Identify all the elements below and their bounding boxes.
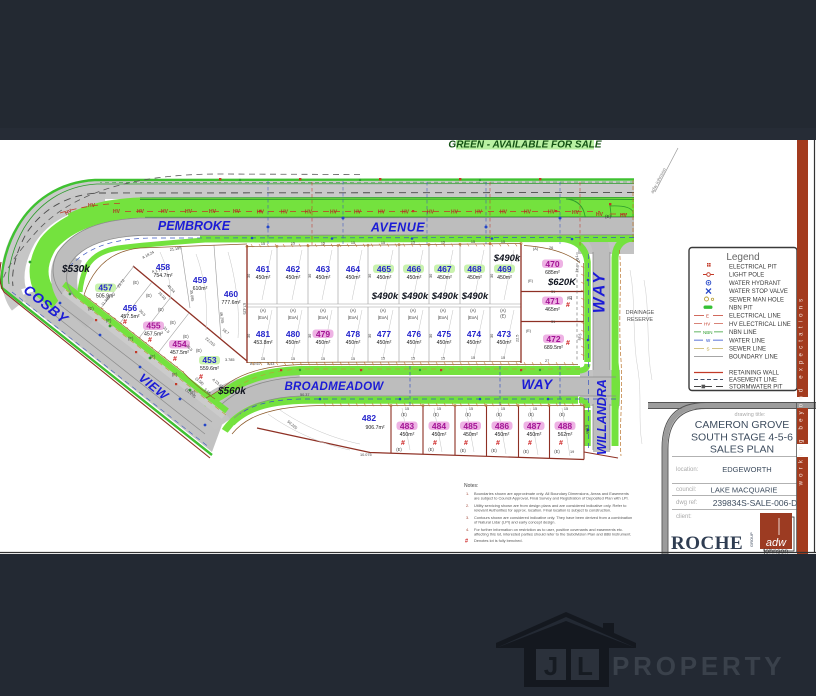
svg-text:468: 468 xyxy=(467,264,481,274)
svg-text:(E): (E) xyxy=(460,448,466,453)
svg-text:450m²: 450m² xyxy=(432,432,447,438)
svg-text:#: # xyxy=(465,539,468,545)
svg-text:relevant Authorities for appro: relevant Authorities for approx. locatio… xyxy=(474,508,611,513)
svg-text:ELECTRICAL PIT: ELECTRICAL PIT xyxy=(729,265,777,271)
svg-text:HV: HV xyxy=(233,209,241,215)
svg-text:(ExA): (ExA) xyxy=(318,315,329,320)
svg-text:HV: HV xyxy=(500,210,508,216)
svg-text:#: # xyxy=(433,440,437,447)
svg-text:(A): (A) xyxy=(500,308,506,313)
svg-text:HV: HV xyxy=(524,210,532,216)
svg-text:(E): (E) xyxy=(196,348,202,353)
svg-text:22.5: 22.5 xyxy=(516,255,520,262)
svg-text:15: 15 xyxy=(381,357,385,361)
svg-text:RETAINING WALL: RETAINING WALL xyxy=(729,371,780,377)
svg-text:777.6m²: 777.6m² xyxy=(221,300,240,306)
svg-text:affecting this lot, interested: affecting this lot, interested parties s… xyxy=(474,532,631,537)
svg-text:465: 465 xyxy=(377,264,391,274)
svg-text:30: 30 xyxy=(490,334,494,338)
svg-text:SALES PLAN: SALES PLAN xyxy=(710,444,774,456)
svg-text:484: 484 xyxy=(432,421,446,431)
svg-text:467: 467 xyxy=(437,264,451,274)
svg-text:HV: HV xyxy=(620,213,628,219)
svg-text:dwg ref:: dwg ref: xyxy=(676,500,698,506)
svg-text:BROADMEADOW: BROADMEADOW xyxy=(284,381,384,393)
svg-text:HV: HV xyxy=(137,209,145,215)
svg-text:57.425: 57.425 xyxy=(242,303,246,315)
svg-text:(F): (F) xyxy=(150,354,156,359)
svg-text:455: 455 xyxy=(146,321,160,331)
svg-text:450m²: 450m² xyxy=(463,432,478,438)
svg-text:$490k: $490k xyxy=(431,291,459,302)
svg-text:450m²: 450m² xyxy=(316,275,331,281)
svg-text:450m²: 450m² xyxy=(495,432,510,438)
svg-text:(A): (A) xyxy=(260,308,266,313)
svg-text:450m²: 450m² xyxy=(437,275,452,281)
svg-text:(E): (E) xyxy=(526,329,532,333)
svg-text:(E): (E) xyxy=(396,447,402,452)
svg-text:450m²: 450m² xyxy=(407,340,422,346)
svg-text:486: 486 xyxy=(495,421,509,431)
svg-text:WATER LINE: WATER LINE xyxy=(729,338,765,344)
svg-text:475: 475 xyxy=(437,329,451,339)
svg-text:(A): (A) xyxy=(320,308,326,313)
svg-text:450m²: 450m² xyxy=(467,340,482,346)
svg-text:450m²: 450m² xyxy=(316,340,331,346)
svg-text:3.785: 3.785 xyxy=(225,358,235,362)
svg-text:HV: HV xyxy=(402,210,410,216)
svg-text:15: 15 xyxy=(564,407,568,411)
svg-text:HV: HV xyxy=(451,210,459,216)
svg-text:HV: HV xyxy=(209,209,217,215)
svg-text:(E): (E) xyxy=(133,280,139,285)
svg-text:450m²: 450m² xyxy=(407,275,422,281)
svg-text:L: L xyxy=(577,651,593,681)
svg-text:453.8m²: 453.8m² xyxy=(253,340,272,346)
svg-text:#: # xyxy=(123,319,127,326)
svg-text:(E): (E) xyxy=(496,412,502,417)
svg-text:15: 15 xyxy=(351,241,355,245)
svg-text:488: 488 xyxy=(558,421,572,431)
svg-text:location:: location: xyxy=(676,467,699,473)
svg-text:15: 15 xyxy=(261,357,265,361)
svg-text:(E): (E) xyxy=(523,449,529,454)
svg-text:15: 15 xyxy=(321,357,325,361)
svg-text:NBN PIT: NBN PIT xyxy=(729,306,753,312)
svg-text:Legend: Legend xyxy=(726,252,759,263)
svg-text:15: 15 xyxy=(471,356,475,360)
svg-text:15: 15 xyxy=(291,357,295,361)
svg-text:15: 15 xyxy=(471,240,475,244)
svg-text:450m²: 450m² xyxy=(497,275,512,281)
svg-text:450m²: 450m² xyxy=(467,275,482,281)
svg-text:S: S xyxy=(707,346,710,351)
svg-text:(A): (A) xyxy=(290,308,296,313)
svg-text:450m²: 450m² xyxy=(346,340,361,346)
svg-text:15: 15 xyxy=(437,407,441,411)
svg-text:10.075: 10.075 xyxy=(360,453,372,457)
svg-text:478: 478 xyxy=(346,329,360,339)
svg-text:HV: HV xyxy=(257,210,265,216)
svg-text:15: 15 xyxy=(351,357,355,361)
svg-text:456: 456 xyxy=(123,303,137,313)
svg-text:459: 459 xyxy=(193,275,207,285)
svg-text:483: 483 xyxy=(400,421,414,431)
svg-text:(E): (E) xyxy=(433,412,439,417)
svg-text:(E): (E) xyxy=(500,314,506,319)
svg-text:NBN LINE: NBN LINE xyxy=(729,330,757,336)
svg-text:471: 471 xyxy=(545,296,559,306)
svg-text:(F): (F) xyxy=(190,390,196,395)
svg-text:drawing title:: drawing title: xyxy=(735,412,766,418)
svg-text:(E): (E) xyxy=(401,412,407,417)
svg-text:450m²: 450m² xyxy=(497,340,512,346)
svg-text:27: 27 xyxy=(545,359,549,363)
svg-text:(E): (E) xyxy=(88,306,94,311)
svg-text:(E): (E) xyxy=(465,412,471,417)
svg-text:of Natural Lidar (LPI) and ear: of Natural Lidar (LPI) and early concept… xyxy=(474,520,556,525)
svg-text:5.43: 5.43 xyxy=(267,362,274,366)
svg-text:(ExA): (ExA) xyxy=(408,315,419,320)
svg-text:#: # xyxy=(401,440,405,447)
svg-text:EDGEWORTH: EDGEWORTH xyxy=(722,465,771,474)
svg-text:(ExA): (ExA) xyxy=(378,315,389,320)
svg-text:SEWER MAN HOLE: SEWER MAN HOLE xyxy=(729,297,784,303)
svg-text:450m²: 450m² xyxy=(286,275,301,281)
svg-text:are subject to Council Approva: are subject to Council Approval, Final S… xyxy=(474,496,629,501)
svg-text:470: 470 xyxy=(545,259,559,269)
svg-text:15: 15 xyxy=(501,407,505,411)
svg-text:HV: HV xyxy=(88,203,96,209)
svg-text:473: 473 xyxy=(497,329,511,339)
svg-text:476: 476 xyxy=(407,329,421,339)
svg-text:19: 19 xyxy=(570,450,574,454)
svg-text:485: 485 xyxy=(463,421,477,431)
svg-text:480: 480 xyxy=(286,329,300,339)
svg-text:#: # xyxy=(464,440,468,447)
svg-text:RESERVE: RESERVE xyxy=(627,317,654,323)
svg-text:15: 15 xyxy=(469,407,473,411)
svg-text:#: # xyxy=(566,340,570,347)
svg-text:WILLANDRA: WILLANDRA xyxy=(595,379,609,455)
svg-text:HV: HV xyxy=(354,210,362,216)
svg-text:HV: HV xyxy=(427,210,435,216)
svg-text:Denotes lot is fully benched.: Denotes lot is fully benched. xyxy=(474,538,523,543)
svg-text:30: 30 xyxy=(308,274,312,278)
svg-text:(E): (E) xyxy=(170,320,176,325)
svg-text:487: 487 xyxy=(527,421,541,431)
svg-text:15: 15 xyxy=(501,240,505,244)
svg-text:(E): (E) xyxy=(559,412,565,417)
svg-text:15: 15 xyxy=(441,241,445,245)
svg-text:559.6m²: 559.6m² xyxy=(200,366,219,372)
svg-text:450m²: 450m² xyxy=(346,275,361,281)
svg-text:GREEN - AVAILABLE FOR SALE: GREEN - AVAILABLE FOR SALE xyxy=(448,140,601,151)
svg-text:450m²: 450m² xyxy=(256,275,271,281)
svg-text:(E): (E) xyxy=(605,214,612,219)
svg-text:31: 31 xyxy=(551,290,555,294)
svg-text:(A): (A) xyxy=(533,247,539,251)
svg-text:(E): (E) xyxy=(528,412,534,417)
svg-text:CAMERON GROVE: CAMERON GROVE xyxy=(695,419,790,431)
svg-text:HV: HV xyxy=(161,209,169,215)
svg-text:HV: HV xyxy=(281,210,289,216)
svg-text:31: 31 xyxy=(569,296,573,300)
svg-text:#: # xyxy=(559,440,563,447)
svg-text:469: 469 xyxy=(497,264,511,274)
svg-text:HV: HV xyxy=(378,210,386,216)
svg-text:$490k: $490k xyxy=(461,291,489,302)
svg-text:482: 482 xyxy=(362,413,376,423)
svg-text:SEWER LINE: SEWER LINE xyxy=(729,347,766,353)
svg-text:(ExA): (ExA) xyxy=(468,315,479,320)
svg-text:$490k: $490k xyxy=(371,291,399,302)
svg-text:$490k: $490k xyxy=(401,291,429,302)
svg-text:HV ELECTRICAL LINE: HV ELECTRICAL LINE xyxy=(729,322,791,328)
svg-text:460: 460 xyxy=(224,289,238,299)
svg-text:#: # xyxy=(528,440,532,447)
svg-text:(E): (E) xyxy=(554,449,560,454)
svg-text:15: 15 xyxy=(441,357,445,361)
svg-text:(ExA): (ExA) xyxy=(288,315,299,320)
svg-text:26: 26 xyxy=(549,246,553,250)
svg-text:689.5m²: 689.5m² xyxy=(544,345,563,351)
svg-text:15: 15 xyxy=(405,407,409,411)
svg-text:WATER STOP VALVE: WATER STOP VALVE xyxy=(729,289,788,295)
svg-text:HV: HV xyxy=(596,212,604,218)
svg-text:477: 477 xyxy=(377,329,391,339)
svg-text:SOUTH STAGE 4-5-6: SOUTH STAGE 4-5-6 xyxy=(691,432,793,444)
svg-text:#: # xyxy=(173,356,177,363)
svg-text:450m²: 450m² xyxy=(400,432,415,438)
svg-text:31: 31 xyxy=(551,320,555,324)
svg-text:457: 457 xyxy=(98,283,112,293)
svg-text:Notes:: Notes: xyxy=(464,483,478,489)
svg-text:(F): (F) xyxy=(128,336,134,341)
svg-text:E: E xyxy=(706,314,709,319)
svg-text:EASEMENT LINE: EASEMENT LINE xyxy=(729,378,777,384)
svg-text:457.5m²: 457.5m² xyxy=(144,332,163,338)
svg-text:754.7m²: 754.7m² xyxy=(153,273,172,279)
svg-text:STORMWATER PIT: STORMWATER PIT xyxy=(729,385,783,391)
svg-text:15: 15 xyxy=(321,242,325,246)
svg-text:450m²: 450m² xyxy=(377,340,392,346)
svg-text:474: 474 xyxy=(467,329,481,339)
svg-text:AVENUE: AVENUE xyxy=(370,221,425,235)
svg-text:685m²: 685m² xyxy=(545,270,560,276)
svg-text:15: 15 xyxy=(291,242,295,246)
svg-text:WAY: WAY xyxy=(591,271,609,313)
svg-text:4.: 4. xyxy=(466,527,469,532)
svg-text:450m²: 450m² xyxy=(437,340,452,346)
svg-text:15: 15 xyxy=(381,241,385,245)
svg-text:(E): (E) xyxy=(183,334,189,339)
svg-text:50.37: 50.37 xyxy=(300,393,310,397)
svg-text:adw: adw xyxy=(766,537,787,549)
svg-text:2.: 2. xyxy=(466,503,469,508)
svg-text:466: 466 xyxy=(407,264,421,274)
svg-text:WAY: WAY xyxy=(521,377,554,392)
svg-text:A 9.67: A 9.67 xyxy=(250,362,261,366)
svg-text:(E): (E) xyxy=(528,279,534,283)
svg-text:454: 454 xyxy=(172,339,186,349)
svg-text:GROUP: GROUP xyxy=(749,532,754,547)
svg-text:22.5: 22.5 xyxy=(516,335,520,342)
svg-text:15: 15 xyxy=(411,357,415,361)
svg-text:ELECTRICAL LINE: ELECTRICAL LINE xyxy=(729,314,781,320)
svg-text:#: # xyxy=(148,337,152,344)
svg-text:HV: HV xyxy=(548,210,556,216)
svg-text:461: 461 xyxy=(256,264,270,274)
svg-text:(E): (E) xyxy=(146,293,152,298)
svg-text:HV: HV xyxy=(113,209,121,215)
svg-text:15: 15 xyxy=(411,241,415,245)
svg-text:453: 453 xyxy=(202,355,216,365)
svg-text:(ExA): (ExA) xyxy=(438,315,449,320)
svg-text:$530k: $530k xyxy=(61,264,90,275)
svg-text:450m²: 450m² xyxy=(377,275,392,281)
svg-text:(F): (F) xyxy=(106,318,112,323)
svg-text:working beyond expectations: working beyond expectations xyxy=(799,295,805,487)
svg-text:NBN: NBN xyxy=(703,330,713,335)
svg-text:30: 30 xyxy=(429,334,433,338)
svg-text:#: # xyxy=(566,302,570,309)
svg-text:462: 462 xyxy=(286,264,300,274)
svg-text:(E): (E) xyxy=(158,307,164,312)
svg-text:ROCHE: ROCHE xyxy=(671,533,743,554)
svg-text:464: 464 xyxy=(346,264,360,274)
svg-text:(E): (E) xyxy=(428,447,434,452)
svg-text:30: 30 xyxy=(247,274,251,278)
svg-text:465m²: 465m² xyxy=(545,307,560,313)
svg-text:906.7m²: 906.7m² xyxy=(365,425,384,431)
svg-text:30: 30 xyxy=(308,334,312,338)
svg-text:463: 463 xyxy=(316,264,330,274)
svg-text:15: 15 xyxy=(261,242,265,246)
svg-text:#: # xyxy=(496,440,500,447)
svg-text:479: 479 xyxy=(316,329,330,339)
svg-text:PEMBROKE: PEMBROKE xyxy=(158,219,231,233)
svg-text:HV: HV xyxy=(305,210,313,216)
svg-text:HV: HV xyxy=(572,210,580,216)
svg-text:30: 30 xyxy=(368,274,372,278)
svg-text:(A): (A) xyxy=(350,308,356,313)
svg-text:(ExA): (ExA) xyxy=(258,315,269,320)
svg-text:(A): (A) xyxy=(410,308,416,313)
svg-text:WATER HYDRANT: WATER HYDRANT xyxy=(729,281,781,287)
svg-text:(ExA): (ExA) xyxy=(348,315,359,320)
svg-text:LAKE MACQUARIE: LAKE MACQUARIE xyxy=(711,486,778,495)
svg-text:239834S-SALE-006-D: 239834S-SALE-006-D xyxy=(713,498,798,508)
svg-text:(A): (A) xyxy=(440,308,446,313)
svg-text:30: 30 xyxy=(429,274,433,278)
svg-text:HV: HV xyxy=(704,322,710,327)
svg-text:HV: HV xyxy=(330,210,338,216)
svg-text:DRAINAGE: DRAINAGE xyxy=(626,310,655,316)
svg-text:481: 481 xyxy=(256,329,270,339)
svg-text:3.: 3. xyxy=(466,515,469,520)
svg-text:client:: client: xyxy=(676,514,692,520)
svg-text:HV: HV xyxy=(475,210,483,216)
svg-text:15: 15 xyxy=(533,407,537,411)
svg-text:council:: council: xyxy=(676,487,697,493)
svg-text:J: J xyxy=(544,651,558,681)
svg-text:PROPERTY: PROPERTY xyxy=(612,651,785,681)
svg-text:(A): (A) xyxy=(470,308,476,313)
svg-text:450m²: 450m² xyxy=(286,340,301,346)
svg-text:30: 30 xyxy=(368,334,372,338)
svg-text:30: 30 xyxy=(247,334,251,338)
svg-text:472: 472 xyxy=(546,334,560,344)
svg-text:$620K: $620K xyxy=(547,277,577,288)
svg-text:450m²: 450m² xyxy=(527,432,542,438)
svg-text:15: 15 xyxy=(501,356,505,360)
svg-text:(F): (F) xyxy=(172,372,178,377)
svg-text:BOUNDARY LINE: BOUNDARY LINE xyxy=(729,355,778,361)
svg-text:30: 30 xyxy=(490,274,494,278)
svg-text:HV: HV xyxy=(185,209,193,215)
svg-text:(A): (A) xyxy=(380,308,386,313)
svg-text:LIGHT POLE: LIGHT POLE xyxy=(729,273,764,279)
svg-text:(E): (E) xyxy=(491,448,497,453)
svg-text:1.: 1. xyxy=(466,491,469,496)
svg-text:610m²: 610m² xyxy=(193,286,208,292)
svg-text:562m²: 562m² xyxy=(558,432,573,438)
